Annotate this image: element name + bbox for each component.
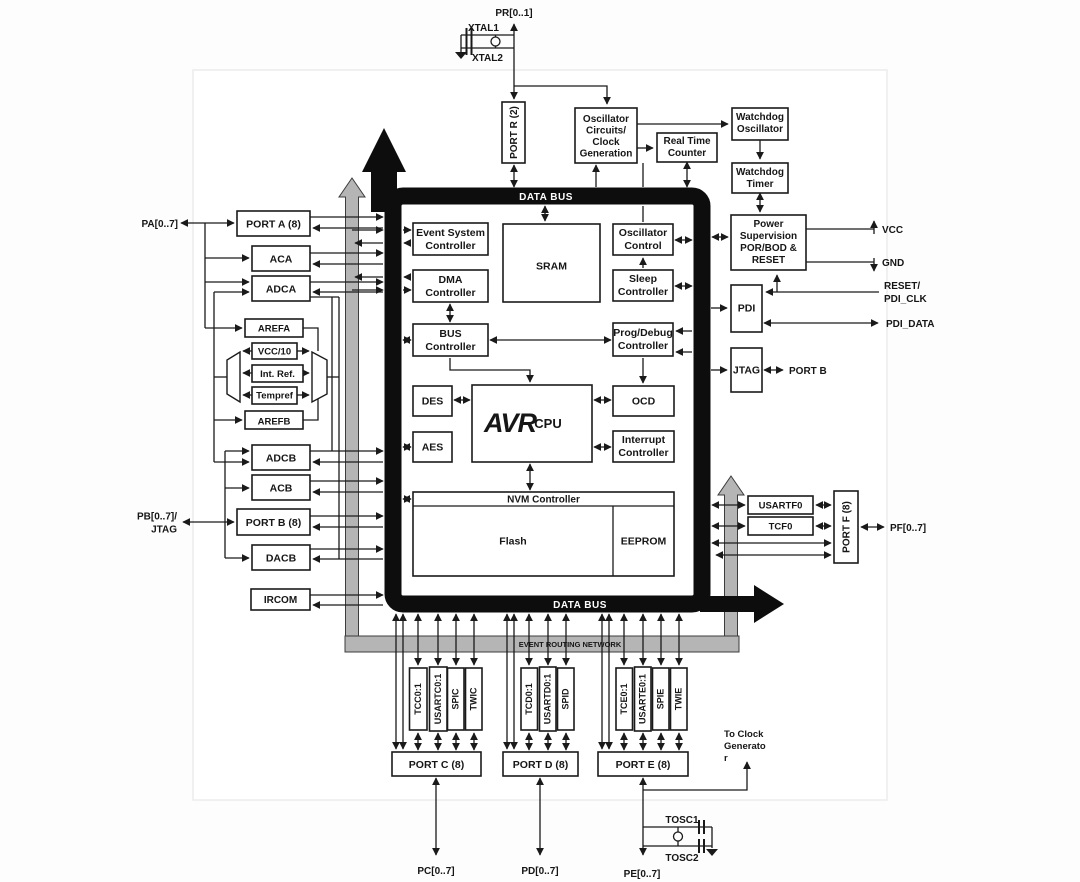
svg-text:Controller: Controller (425, 341, 475, 353)
label-port-e: PORT E (8) (616, 759, 671, 771)
label-port-r: PORT R (2) (509, 106, 520, 159)
label-twie: TWIE (674, 688, 684, 711)
pin-label-reset: RESET/ (884, 281, 920, 292)
svg-text:Oscillator: Oscillator (737, 124, 783, 135)
pin-label-pdi-data: PDI_DATA (886, 319, 935, 330)
label-des: DES (422, 396, 444, 408)
pin-label-tosc2: TOSC2 (665, 853, 699, 864)
crystal-icon (491, 37, 500, 46)
label-acb: ACB (270, 483, 293, 495)
svg-text:Generation: Generation (580, 149, 633, 160)
label-adca: ADCA (266, 284, 297, 296)
avr-logo: AVR (483, 408, 538, 438)
label-watchdog-oscillator: Watchdog (736, 112, 784, 123)
label-usarte01: USARTE0:1 (638, 674, 648, 724)
svg-text:RESET: RESET (752, 255, 785, 266)
svg-text:r: r (724, 753, 728, 764)
label-vcc10: VCC/10 (258, 347, 291, 358)
pin-label-gnd: GND (882, 258, 904, 269)
label-tcd01: TCD0:1 (524, 683, 534, 715)
label-aca: ACA (270, 254, 293, 266)
label-power-supervision: Power (753, 219, 783, 230)
pin-label-pa: PA[0..7] (142, 219, 179, 230)
label-twic: TWIC (469, 687, 479, 710)
label-ircom: IRCOM (264, 595, 297, 606)
pin-label-pb: PB[0..7]/ (137, 512, 177, 523)
svg-text:Generato: Generato (724, 741, 766, 752)
label-port-f: PORT F (8) (842, 501, 853, 553)
label-usartd01: USARTD0:1 (543, 674, 553, 725)
svg-text:Clock: Clock (592, 137, 620, 148)
label-real-time-counter: Real Time (663, 136, 710, 147)
label-dacb: DACB (266, 553, 297, 565)
label-dma: DMA (439, 274, 463, 286)
label-adcb: ADCB (266, 453, 297, 465)
mux-left-icon (227, 352, 240, 402)
ground-icon (455, 52, 467, 59)
label-data-bus-bottom: DATA BUS (553, 600, 607, 611)
label-watchdog-timer: Watchdog (736, 167, 784, 178)
label-tce01: TCE0:1 (619, 683, 629, 714)
label-interrupt: Interrupt (622, 434, 666, 446)
label-port-d: PORT D (8) (513, 759, 568, 771)
label-port-b8: PORT B (8) (246, 517, 301, 529)
label-spie: SPIE (656, 689, 666, 710)
svg-text:Counter: Counter (668, 148, 706, 159)
label-cpu: CPU (534, 416, 561, 431)
svg-text:JTAG: JTAG (151, 525, 177, 536)
label-aes: AES (422, 442, 444, 454)
pin-label-pr: PR[0..1] (495, 8, 532, 19)
label-flash: Flash (499, 536, 526, 548)
pin-label-xtal1: XTAL1 (468, 23, 499, 34)
label-tempref: Tempref (256, 391, 294, 402)
svg-text:Control: Control (624, 240, 661, 252)
label-arefa: AREFA (258, 324, 290, 335)
label-event-routing: EVENT ROUTING NETWORK (519, 640, 622, 649)
label-port-c: PORT C (8) (409, 759, 464, 771)
pin-label-pf: PF[0..7] (890, 523, 926, 534)
label-nvm: NVM Controller (507, 495, 580, 506)
pin-label-pc: PC[0..7] (417, 866, 454, 877)
label-eeprom: EEPROM (621, 536, 667, 548)
label-jtag: JTAG (733, 365, 760, 377)
svg-text:Controller: Controller (425, 287, 475, 299)
crystal-icon (674, 832, 683, 841)
label-oscillator-circuits: Oscillator (583, 114, 629, 125)
pin-label-port-b: PORT B (789, 366, 827, 377)
label-to-clock: To Clock (724, 729, 764, 740)
label-prog-debug: Prog/Debug (613, 327, 673, 339)
label-event-system: Event System (416, 227, 485, 239)
label-spic: SPIC (451, 688, 461, 710)
pin-label-tosc1: TOSC1 (665, 815, 699, 826)
label-usartf0: USARTF0 (759, 501, 803, 512)
label-tcf0: TCF0 (769, 522, 793, 533)
label-oscillator-control: Oscillator (619, 227, 667, 239)
label-spid: SPID (561, 688, 571, 710)
mux-right-icon (312, 352, 327, 402)
label-sleep: Sleep (629, 273, 657, 285)
label-bus-controller: BUS (439, 328, 461, 340)
diagram-canvas: PR[0..1] XTAL1 XTAL2 PORT R (2) Oscillat… (0, 0, 1080, 882)
svg-text:Timer: Timer (746, 179, 773, 190)
label-ocd: OCD (632, 396, 656, 408)
pin-label-xtal2: XTAL2 (472, 53, 503, 64)
pin-label-vcc: VCC (882, 225, 903, 236)
label-usartc01: USARTC0:1 (433, 674, 443, 725)
svg-text:Controller: Controller (618, 340, 668, 352)
pin-label-pd: PD[0..7] (521, 866, 558, 877)
svg-text:PDI_CLK: PDI_CLK (884, 294, 928, 305)
svg-text:Controller: Controller (425, 240, 475, 252)
svg-text:Controller: Controller (618, 286, 668, 298)
label-int-ref: Int. Ref. (260, 369, 295, 380)
svg-text:Circuits/: Circuits/ (586, 126, 626, 137)
ground-icon (706, 849, 718, 856)
label-sram: SRAM (536, 261, 567, 273)
label-port-a: PORT A (8) (246, 219, 301, 231)
label-tcc01: TCC0:1 (413, 683, 423, 715)
label-data-bus-top: DATA BUS (519, 192, 573, 203)
label-arefb: AREFB (258, 417, 291, 428)
svg-text:POR/BOD &: POR/BOD & (740, 243, 797, 254)
label-pdi: PDI (738, 303, 756, 315)
svg-text:Controller: Controller (618, 447, 668, 459)
pin-label-pe: PE[0..7] (624, 869, 661, 880)
block-diagram: PR[0..1] XTAL1 XTAL2 PORT R (2) Oscillat… (0, 0, 1080, 882)
svg-text:Supervision: Supervision (740, 231, 797, 242)
